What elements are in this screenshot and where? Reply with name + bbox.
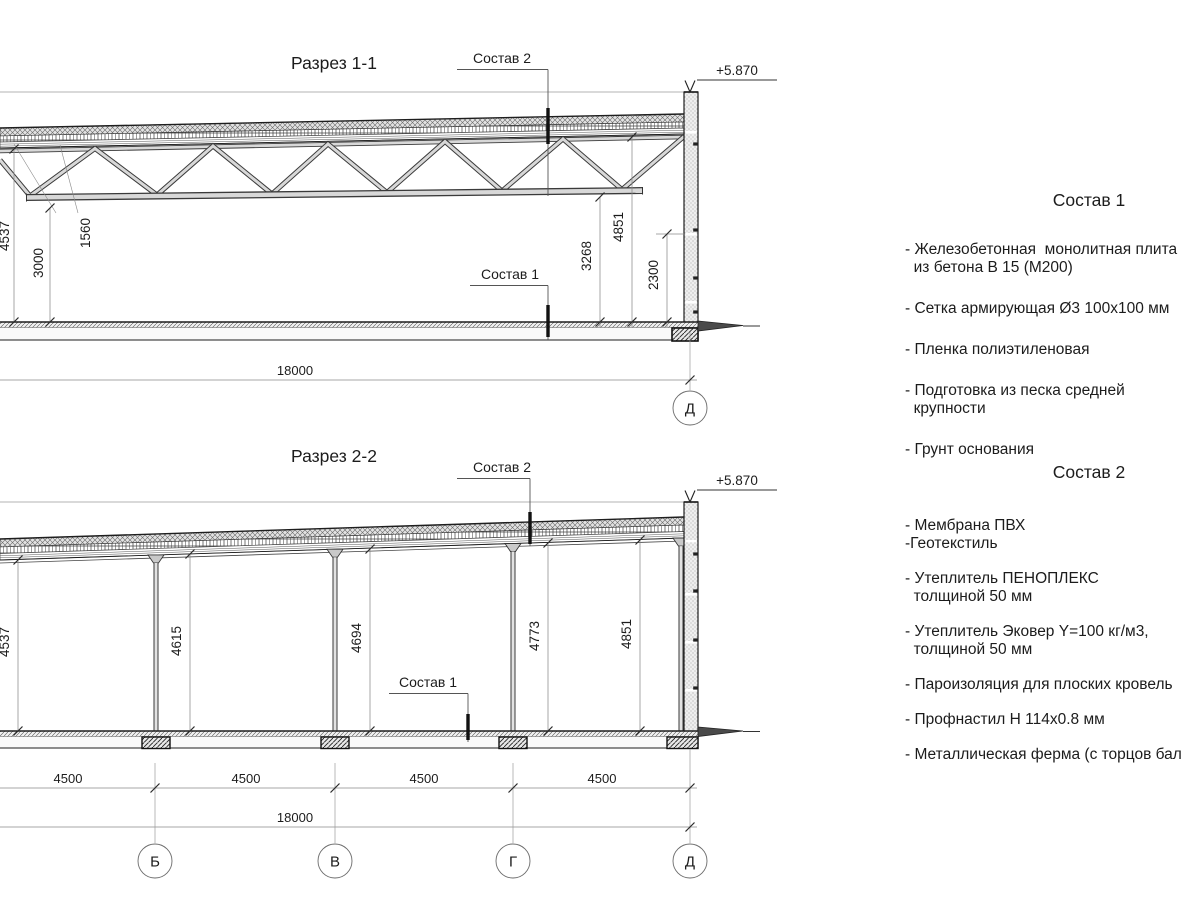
dimension-total-length: 18000 — [0, 332, 697, 390]
exterior-apron — [698, 727, 760, 737]
dim-clear-height: 3000 — [31, 248, 46, 278]
section-1-1-title: Разрез 1-1 — [291, 53, 377, 73]
composition2-label: Состав 2 — [473, 50, 531, 66]
roof-assembly — [0, 517, 684, 563]
axis-letter: В — [330, 854, 340, 871]
material-list-item: - Профнастил Н 114х0.8 мм — [905, 711, 1200, 729]
foundation-block — [672, 328, 698, 341]
dimension-ticks — [10, 133, 695, 832]
dim-bottom-chord-height: 3268 — [579, 241, 594, 271]
dim-total-length: 18000 — [277, 363, 313, 378]
drawing-sheet: Разрез 1-1 — [0, 0, 1200, 900]
dim-total-height: 4537 — [0, 221, 12, 251]
composition2-title: Состав 2 — [905, 462, 1200, 483]
dim-height-1: 4537 — [0, 627, 12, 657]
axis-circle-d: Д — [673, 844, 707, 878]
dim-height-3: 4694 — [349, 622, 364, 653]
material-list-item: - Подготовка из песка средней крупности — [905, 382, 1200, 418]
material-list-item: - Утеплитель Эковер Y=100 кг/м3, толщино… — [905, 623, 1200, 659]
axis-circle-d-top: Д — [673, 391, 707, 425]
dim-truss-height: 1560 — [78, 218, 93, 248]
dim-spacing-4: 4500 — [588, 771, 617, 786]
axis-circle-g: Г — [496, 844, 530, 878]
material-list-item: - Мембрана ПВХ -Геотекстиль — [905, 517, 1200, 553]
dim-wall-mark-height: 2300 — [646, 260, 661, 290]
dim-spacing-3: 4500 — [410, 771, 439, 786]
composition2-notes: Состав 2 - Мембрана ПВХ -Геотекстиль - У… — [905, 462, 1200, 781]
elevation-mark: +5.870 — [685, 473, 777, 502]
axis-extension-lines — [155, 749, 690, 843]
columns — [148, 538, 689, 731]
composition2-label: Состав 2 — [473, 459, 531, 475]
dim-spacing-2: 4500 — [232, 771, 261, 786]
exterior-apron — [698, 321, 760, 331]
section-2-2-drawing: Разрез 2-2 — [0, 446, 777, 878]
dim-height-2: 4615 — [169, 626, 184, 656]
dimension-row-total: 18000 — [0, 810, 697, 827]
axis-circle-v: В — [318, 844, 352, 878]
floor-slab — [0, 322, 698, 340]
elevation-value: +5.870 — [716, 473, 758, 488]
material-list-item: - Грунт основания — [905, 441, 1200, 459]
axis-circle-b: Б — [138, 844, 172, 878]
dim-height-5: 4851 — [619, 619, 634, 649]
material-list-item: - Пленка полиэтиленовая — [905, 341, 1200, 359]
composition1-notes: Состав 1 - Железобетонная монолитная пли… — [905, 190, 1200, 482]
composition1-label: Состав 1 — [399, 674, 457, 690]
dim-total-length: 18000 — [277, 810, 313, 825]
dimension-row-spacings: 4500 4500 4500 4500 — [0, 771, 697, 788]
exterior-wall — [684, 502, 698, 748]
dim-spacing-1: 4500 — [54, 771, 83, 786]
composition1-label: Состав 1 — [481, 266, 539, 282]
section-2-2-title: Разрез 2-2 — [291, 446, 377, 466]
material-list-item: - Металлическая ферма (с торцов бал — [905, 746, 1200, 764]
material-list-item: - Железобетонная монолитная плита из бет… — [905, 241, 1200, 277]
dimension-lines-vertical — [18, 540, 640, 731]
axis-letter: Г — [509, 854, 517, 871]
section-1-1-drawing: Разрез 1-1 — [0, 50, 777, 425]
elevation-arrow-icon — [685, 491, 695, 503]
elevation-arrow-icon — [685, 81, 695, 93]
material-list-item: - Сетка армирующая Ø3 100х100 мм — [905, 300, 1200, 318]
material-list-item: - Утеплитель ПЕНОПЛЕКС толщиной 50 мм — [905, 570, 1200, 606]
dim-height-4: 4773 — [527, 621, 542, 651]
elevation-value: +5.870 — [716, 63, 758, 78]
axis-letter: Б — [150, 854, 160, 871]
elevation-mark: +5.870 — [685, 63, 777, 92]
material-list-item: - Пароизоляция для плоских кровель — [905, 676, 1200, 694]
axis-letter: Д — [685, 401, 695, 418]
composition1-title: Состав 1 — [905, 190, 1200, 211]
axis-letter: Д — [685, 854, 695, 871]
dim-deck-height: 4851 — [611, 212, 626, 242]
